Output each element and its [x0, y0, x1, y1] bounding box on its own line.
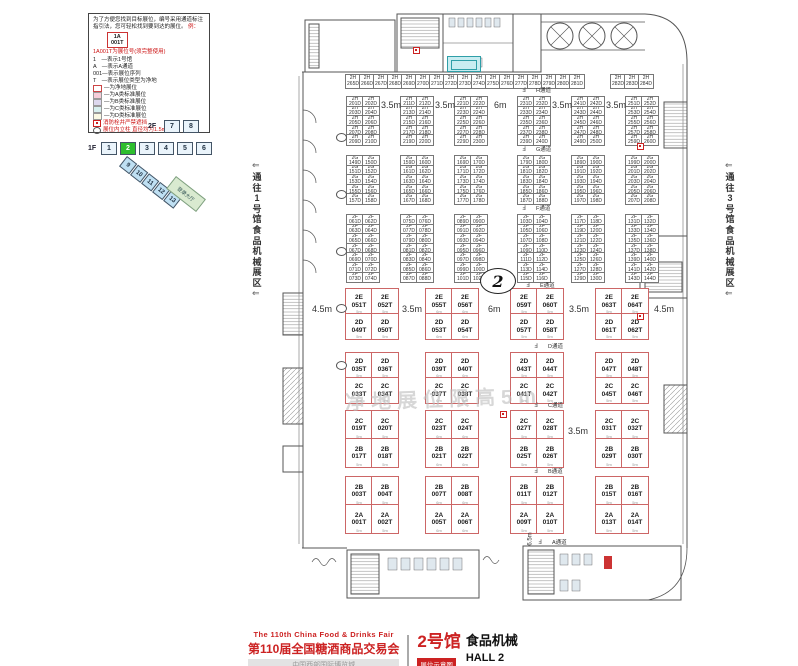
booth: 2C 024T6m	[451, 410, 479, 440]
footer: The 110th China Food & Drinks Fair 第110届…	[248, 627, 558, 666]
booth: 2F 088D	[416, 272, 434, 284]
booth: 2E 056T6m	[451, 288, 479, 315]
booth: 2D 044T5m	[536, 352, 564, 379]
booth: 2A 006T6m	[451, 504, 479, 534]
booth: 2E 059T5m	[510, 288, 538, 315]
booth: 2A 009T5m	[510, 504, 538, 534]
booth: 2B 016T5m	[621, 476, 649, 506]
dimension-label: 4.5m	[312, 304, 332, 314]
aisle-label: B通道	[548, 467, 563, 475]
booth-size-label: 6m	[426, 335, 452, 339]
aisle-label: G通道	[536, 145, 551, 153]
fair-title-block: The 110th China Food & Drinks Fair 第110届…	[248, 630, 399, 666]
dimension-label: 3.5m	[381, 100, 401, 110]
booth: 2D 039T6m	[425, 352, 453, 379]
dimension-label: 3.5m	[552, 100, 572, 110]
booth: 2G 158D	[362, 193, 380, 205]
dimension-label: 3.5m	[435, 100, 455, 110]
dimension-label: 6m	[494, 100, 507, 110]
booth: 2E 055T6m	[425, 288, 453, 315]
booth-size-label: 6m	[426, 529, 452, 533]
booth: 2H 250D	[587, 134, 605, 146]
booth: 2C 027T5m	[510, 410, 538, 440]
booth: 2B 007T6m	[425, 476, 453, 506]
dimension-label: 6m	[488, 304, 501, 314]
fair-title-en: The 110th China Food & Drinks Fair	[248, 630, 399, 639]
booth: 2G 198D	[587, 193, 605, 205]
booth: 2C 032T5m	[621, 410, 649, 440]
booth-size-label: 6m	[426, 463, 452, 467]
booth: 2B 008T6m	[451, 476, 479, 506]
booth-size-label: 5m	[511, 335, 537, 339]
booth: 2D 057T5m	[510, 313, 538, 340]
booth: 2C 023T6m	[425, 410, 453, 440]
booth: 2C 045T5m	[595, 377, 623, 404]
booth-size-label: 5m	[346, 463, 372, 467]
booth: 2B 025T5m	[510, 438, 538, 468]
pillar-icon	[336, 304, 347, 313]
hall-category-cn: 食品机械	[466, 630, 551, 649]
booth-size-label: 5m	[537, 335, 563, 339]
aisle-label: C通道	[548, 401, 563, 409]
booth: 2B 026T5m	[536, 438, 564, 468]
booth: 2B 017T5m	[345, 438, 373, 468]
booth: 2D 035T5m	[345, 352, 373, 379]
pillar-icon	[336, 133, 347, 142]
escalator-icon	[447, 56, 481, 72]
booth-size-label: 6m	[452, 463, 478, 467]
booth: 2B 004T5m	[371, 476, 399, 506]
booth-size-label: 5m	[346, 529, 372, 533]
booth-size-label: 5m	[622, 463, 648, 467]
dimension-label: 4.5m	[654, 304, 674, 314]
booth-size-label: 6m	[452, 335, 478, 339]
booth: 2E 051T5m	[345, 288, 373, 315]
booth: 2D 062T5m	[621, 313, 649, 340]
dimension-label: 3.5m	[568, 426, 588, 436]
booth-area: 2H 265D2H 266D2H 267D2H 268D2H 269D2H 27…	[0, 0, 798, 666]
booth-size-label: 5m	[622, 529, 648, 533]
booth-size-label: 5m	[622, 335, 648, 339]
hydrant-icon	[500, 411, 507, 418]
booth-size-label: 5m	[346, 335, 372, 339]
door-icon: Ⅎ	[534, 342, 538, 350]
aisle-label: E通道	[540, 281, 555, 289]
booth-size-label: 5m	[372, 335, 398, 339]
booth: 2D 048T5m	[621, 352, 649, 379]
hydrant-icon	[413, 47, 420, 54]
booth: 2E 063T5m	[595, 288, 623, 315]
hall-name-cn: 2号馆	[417, 627, 460, 652]
door-icon: Ⅎ	[522, 145, 526, 153]
hall-title-block: 2号馆 食品机械 展位示意图 HALL 2 FOOD MACHINERY	[417, 627, 551, 666]
booth-size-label: 5m	[596, 463, 622, 467]
booth: 2D 053T6m	[425, 313, 453, 340]
dimension-label: 3.5m	[606, 100, 626, 110]
booth: 2H 220D	[416, 134, 434, 146]
booth: 2F 130D	[587, 272, 605, 284]
booth: 2H 230D	[470, 134, 488, 146]
plan-badge: 展位示意图	[417, 658, 456, 666]
door-icon: Ⅎ	[526, 281, 530, 289]
booth: 2F 144D	[641, 272, 659, 284]
booth: 2A 010T5m	[536, 504, 564, 534]
venue-label: 中国西部国际博览城	[248, 659, 399, 666]
booth: 2B 015T5m	[595, 476, 623, 506]
booth-size-label: 5m	[372, 463, 398, 467]
dimension-label: 3.5m	[569, 304, 589, 314]
booth: 2E 060T5m	[536, 288, 564, 315]
booth-size-label: 5m	[622, 399, 648, 403]
booth: 2F 074D	[362, 272, 380, 284]
aisle-label: F通道	[536, 204, 550, 212]
aisle-label: H通道	[536, 86, 551, 94]
booth: 2C 046T5m	[621, 377, 649, 404]
booth: 2D 043T5m	[510, 352, 538, 379]
booth: 2B 030T5m	[621, 438, 649, 468]
booth: 2D 054T6m	[451, 313, 479, 340]
booth: 2D 040T6m	[451, 352, 479, 379]
booth-size-label: 6m	[452, 529, 478, 533]
door-icon: Ⅎ	[522, 86, 526, 94]
booth: 2E 052T5m	[371, 288, 399, 315]
door-icon: Ⅎ	[522, 204, 526, 212]
booth-size-label: 5m	[596, 335, 622, 339]
footer-divider	[407, 635, 409, 666]
floorplan-page: 为了方便您找到目标展位，编号采用通道标注指引法，您可轻松找到要到达的展位。 例：…	[0, 0, 798, 666]
booth: 2B 022T6m	[451, 438, 479, 468]
door-icon: Ⅎ	[538, 538, 542, 546]
booth: 2A 001T5m	[345, 504, 373, 534]
dimension-label: 3.5m	[402, 304, 422, 314]
booth: 2D 047T5m	[595, 352, 623, 379]
pillar-icon	[336, 247, 347, 256]
booth: 2C 031T5m	[595, 410, 623, 440]
booth: 2H 284D	[638, 74, 654, 89]
booth: 2A 005T6m	[425, 504, 453, 534]
pillar-icon	[336, 190, 347, 199]
booth: 2A 014T5m	[621, 504, 649, 534]
booth: 2D 036T5m	[371, 352, 399, 379]
fair-title-cn: 第110届全国糖酒商品交易会	[248, 640, 399, 657]
hall-name-en: HALL 2	[466, 652, 551, 664]
hydrant-icon	[637, 143, 644, 150]
pillar-icon	[336, 361, 347, 370]
booth: 2G 208D	[641, 193, 659, 205]
door-icon: Ⅎ	[534, 467, 538, 475]
booth: 2H 281D	[569, 74, 585, 89]
booth: 2B 018T5m	[371, 438, 399, 468]
booth: 2D 049T5m	[345, 313, 373, 340]
booth: 2H 210D	[362, 134, 380, 146]
booth: 2B 011T5m	[510, 476, 538, 506]
booth: 2B 003T5m	[345, 476, 373, 506]
booth: 2D 061T5m	[595, 313, 623, 340]
booth-size-label: 5m	[372, 529, 398, 533]
booth: 2G 168D	[416, 193, 434, 205]
booth: 2B 029T5m	[595, 438, 623, 468]
hydrant-icon	[637, 313, 644, 320]
booth: 2D 058T5m	[536, 313, 564, 340]
booth: 2D 050T5m	[371, 313, 399, 340]
booth: 2A 002T5m	[371, 504, 399, 534]
aisle-label: A通道	[552, 538, 567, 546]
booth: 2G 178D	[470, 193, 488, 205]
booth: 2C 028T5m	[536, 410, 564, 440]
booth-size-label: 5m	[596, 399, 622, 403]
booth: 2E 064T5m	[621, 288, 649, 315]
hall-number-marker: 2	[480, 268, 516, 294]
dimension-label: 6.5m	[528, 532, 534, 545]
booth: 2B 021T6m	[425, 438, 453, 468]
booth: 2B 012T5m	[536, 476, 564, 506]
booth: 2C 020T5m	[371, 410, 399, 440]
booth: 2A 013T5m	[595, 504, 623, 534]
booth-size-label: 5m	[537, 529, 563, 533]
booth-size-label: 5m	[596, 529, 622, 533]
aisle-label: D通道	[548, 342, 563, 350]
